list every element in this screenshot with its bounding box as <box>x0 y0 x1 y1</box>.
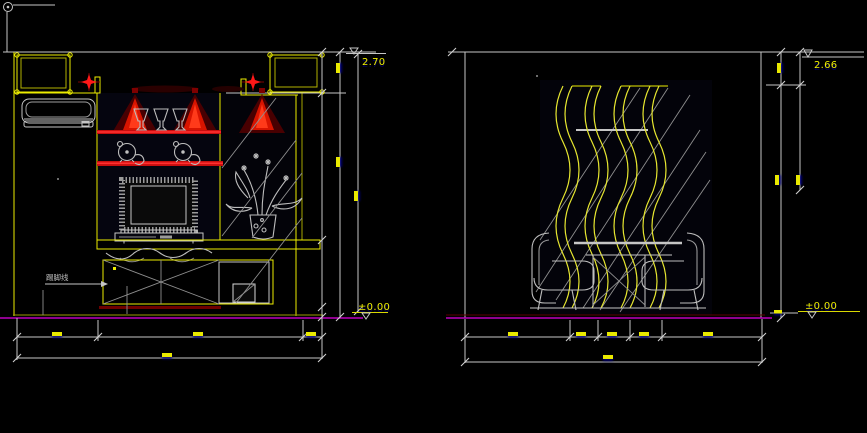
dimension-lines-vertical <box>766 48 806 322</box>
dim-text-blob <box>603 355 613 359</box>
sparkle-light <box>78 73 100 91</box>
wave-bay-panel <box>540 80 712 315</box>
dimension-lines-bottom <box>13 318 326 362</box>
level-marker-top: 2.70 <box>346 48 386 68</box>
dim-text-blob <box>336 63 340 73</box>
dim-text-blob <box>639 332 649 336</box>
cad-screenshot-root: 踢脚线 <box>0 0 867 433</box>
ac-unit <box>22 99 95 127</box>
dim-text-blob <box>576 332 586 336</box>
dim-text-blob <box>774 310 782 314</box>
floor-lines <box>446 315 772 318</box>
cornice-left <box>14 53 100 94</box>
dim-text-blob <box>306 332 316 336</box>
right-elevation: 2.66 ±0.00 <box>446 48 864 366</box>
level-marker-top: 2.66 <box>802 50 864 71</box>
dim-text-blob <box>777 63 781 73</box>
dimension-lines-bottom <box>461 319 766 366</box>
dim-text-blob <box>52 332 62 336</box>
dim-text-blob <box>193 332 203 336</box>
dim-text-blob <box>354 191 358 201</box>
svg-text:2.70: 2.70 <box>362 57 385 68</box>
dim-text-blob <box>508 332 518 336</box>
dim-text-blob <box>162 353 172 357</box>
cad-drawing-canvas: 踢脚线 <box>0 0 867 433</box>
dim-text-blob <box>775 175 779 185</box>
dim-text-blob <box>336 157 340 167</box>
ceiling-glow <box>131 86 199 93</box>
left-elevation: 踢脚线 <box>0 3 390 363</box>
dim-text-blob <box>607 332 617 336</box>
svg-text:±0.00: ±0.00 <box>358 302 390 313</box>
svg-text:±0.00: ±0.00 <box>805 301 837 312</box>
svg-text:2.66: 2.66 <box>814 60 837 71</box>
ceiling-glow <box>212 86 244 92</box>
dim-text-blob <box>796 175 800 185</box>
level-marker-floor: ±0.00 <box>352 302 390 319</box>
level-marker-floor: ±0.00 <box>798 301 860 318</box>
skirting-label: 踢脚线 <box>46 272 69 282</box>
tv-cabinet <box>103 260 273 304</box>
dim-text-blob <box>703 332 713 336</box>
axis-symbol <box>4 3 56 53</box>
